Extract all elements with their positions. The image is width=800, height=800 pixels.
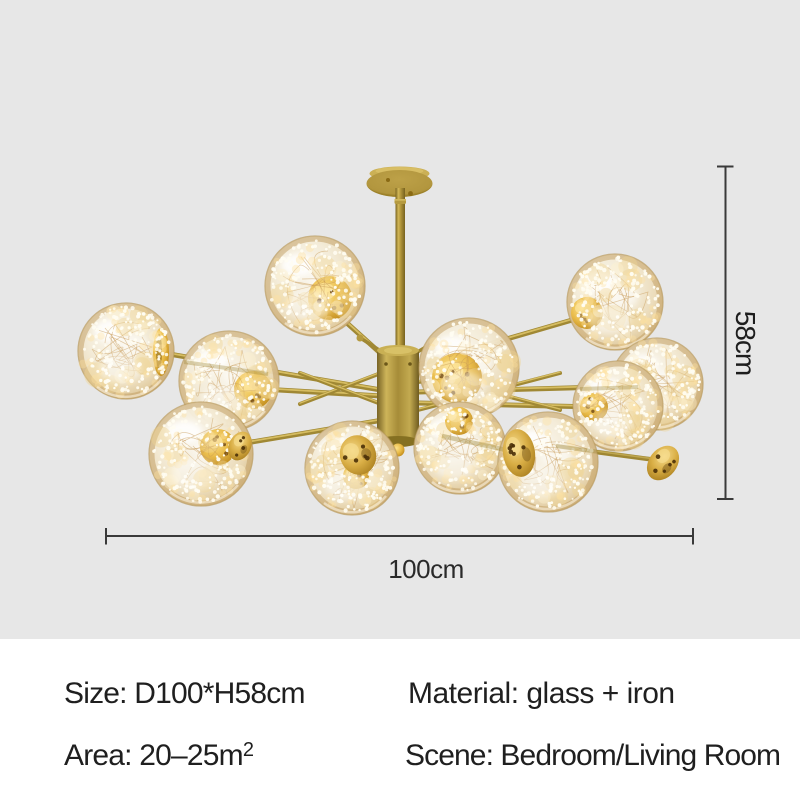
svg-text:100cm: 100cm <box>388 554 464 584</box>
svg-text:58cm: 58cm <box>730 311 761 375</box>
